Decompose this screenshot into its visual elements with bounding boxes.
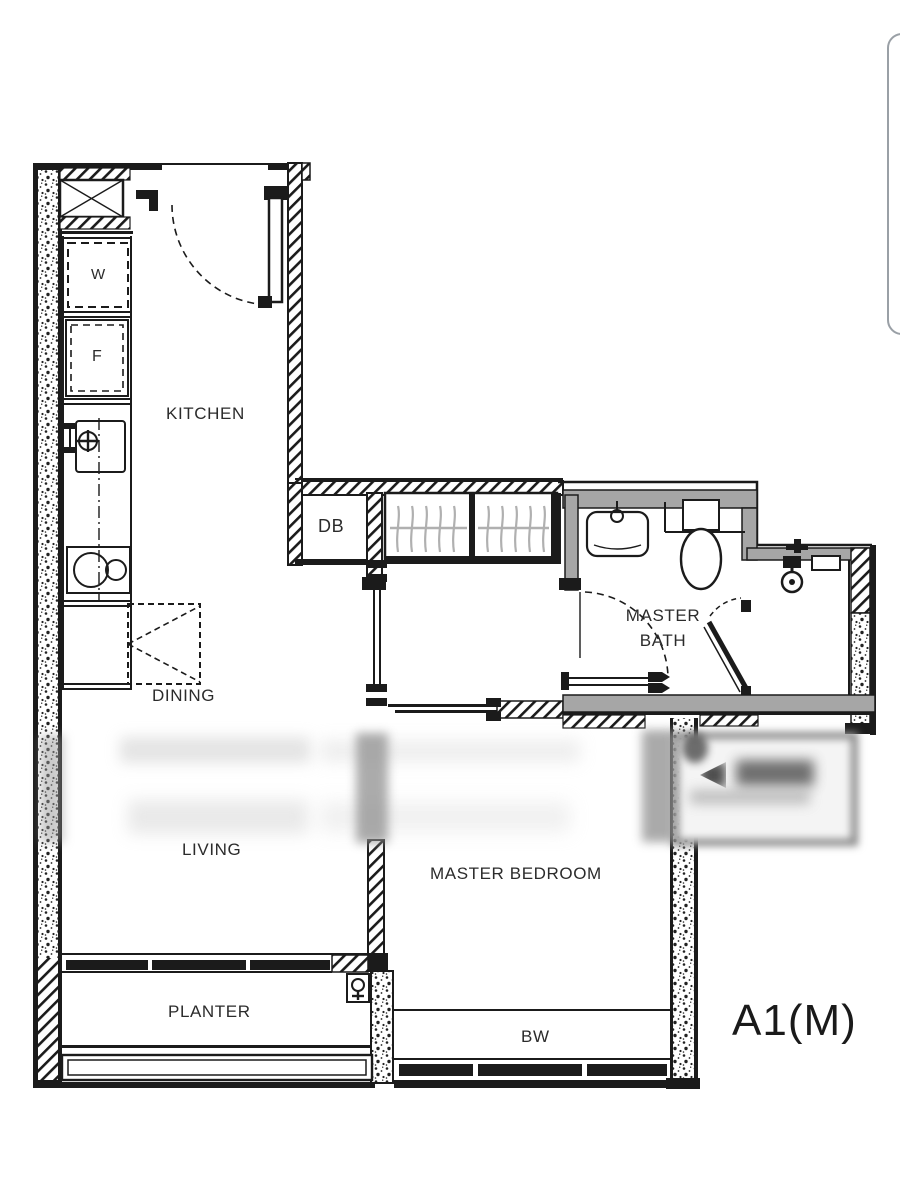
living-bedroom-wall — [364, 560, 393, 1083]
kitchen-label: KITCHEN — [166, 404, 245, 424]
db-label: DB — [318, 516, 344, 537]
master-bedroom-label: MASTER BEDROOM — [430, 864, 602, 884]
entry-door-stop — [136, 190, 158, 211]
fridge-label: F — [92, 348, 102, 366]
wardrobe — [385, 493, 561, 564]
left-exterior-wall — [33, 163, 62, 1088]
dining-label: DINING — [152, 686, 215, 706]
bedroom-right-wall — [666, 718, 700, 1089]
bedroom-sliding-door — [388, 698, 501, 721]
floor-plan-page: W F KITCHEN DB DINING MASTER BATH LIVING… — [0, 0, 900, 1186]
unit-type-label: A1(M) — [732, 996, 857, 1046]
bay-window-label: BW — [521, 1027, 550, 1047]
scrollbar-thumb[interactable] — [887, 33, 900, 335]
planter-window — [33, 1045, 375, 1088]
kitchen-sink — [64, 421, 125, 472]
living-label: LIVING — [182, 840, 241, 860]
shower-head — [782, 539, 808, 592]
shower-niche — [812, 556, 840, 570]
planter-label: PLANTER — [168, 1002, 251, 1022]
living-window — [62, 953, 368, 973]
cooking-hob — [67, 547, 130, 593]
dining-table — [128, 604, 200, 684]
kitchen-cabinets — [62, 236, 132, 690]
bath-vanity — [587, 501, 745, 556]
master-bath-label-line2: BATH — [640, 631, 686, 650]
hose-bib — [347, 974, 369, 1002]
master-bath-label-line1: MASTER — [626, 606, 700, 625]
washer-label: W — [91, 266, 105, 283]
entry-door — [172, 186, 288, 308]
master-bath-label: MASTER BATH — [598, 603, 728, 653]
toilet — [681, 500, 721, 589]
bay-window — [394, 1009, 700, 1088]
towel-rail — [561, 672, 670, 693]
kitchen-right-wall — [288, 163, 310, 483]
ac-ledge — [60, 168, 133, 234]
